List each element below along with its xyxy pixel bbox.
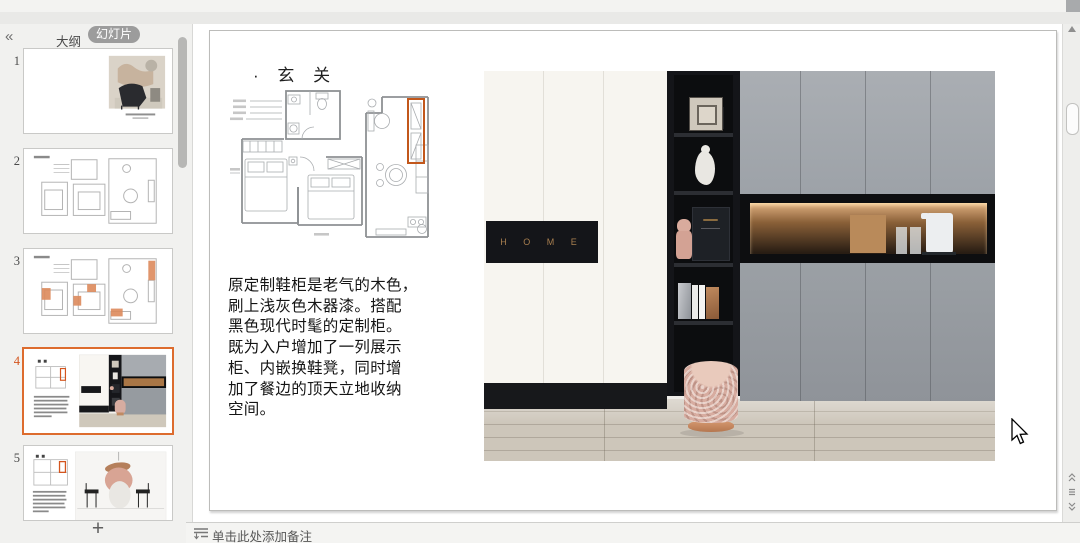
home-sign-niche: H O M E bbox=[486, 221, 598, 263]
floorplan-image[interactable] bbox=[230, 87, 434, 247]
slide-thumbnail-1[interactable] bbox=[23, 48, 173, 134]
slide-2-preview-graphic bbox=[24, 149, 172, 233]
slide-number-4: 4 bbox=[6, 354, 20, 369]
thumbnail-panel-scrollbar[interactable] bbox=[178, 37, 187, 168]
shelf bbox=[674, 263, 733, 267]
gray-lower-cabinet bbox=[740, 263, 995, 401]
floorplan-graphic bbox=[230, 87, 434, 247]
main-vertical-scrollbar bbox=[1062, 24, 1080, 522]
mouse-cursor-icon bbox=[1010, 418, 1030, 448]
shelf bbox=[674, 133, 733, 137]
pink-sculpture-base bbox=[676, 231, 692, 259]
toe-kick bbox=[484, 383, 667, 409]
slide-3-preview-graphic bbox=[24, 249, 172, 333]
add-slide-button[interactable]: + bbox=[80, 518, 116, 542]
white-cabinet: H O M E bbox=[484, 71, 667, 409]
white-pitcher bbox=[926, 213, 953, 254]
cabinet-seam bbox=[603, 71, 604, 383]
browse-slides-icon[interactable] bbox=[1067, 487, 1077, 497]
collapse-panel-icon[interactable]: « bbox=[5, 28, 13, 45]
cabinet-seam bbox=[930, 263, 931, 401]
shelf bbox=[674, 191, 733, 195]
window-corner-tab bbox=[1066, 0, 1080, 12]
wooden-box bbox=[850, 215, 886, 253]
slide-body-textbox[interactable]: 原定制鞋柜是老气的木色， 刷上浅灰色木器漆。搭配 黑色现代时髦的定制柜。 既为入… bbox=[228, 276, 470, 421]
notes-icon bbox=[193, 527, 209, 540]
ribbon-bottom-strip bbox=[0, 0, 1080, 12]
previous-slide-icon[interactable] bbox=[1067, 472, 1077, 482]
slide-thumbnail-3[interactable] bbox=[23, 248, 173, 334]
slide-5-preview-graphic bbox=[24, 446, 172, 521]
notes-placeholder: 单击此处添加备注 bbox=[212, 526, 312, 543]
pink-pouf bbox=[684, 361, 738, 423]
slide-thumbnail-5[interactable] bbox=[23, 445, 173, 521]
next-slide-icon[interactable] bbox=[1067, 502, 1077, 512]
floor-joint bbox=[814, 399, 815, 461]
picture-frame bbox=[689, 97, 723, 131]
slide-thumbnail-4-selected[interactable] bbox=[22, 347, 174, 435]
gold-accent bbox=[703, 219, 718, 221]
book bbox=[692, 285, 698, 319]
niche-glow bbox=[750, 203, 987, 254]
silver-bookend bbox=[678, 283, 691, 319]
box-line bbox=[701, 228, 720, 229]
slide-number-5: 5 bbox=[6, 451, 20, 466]
slide-number-1: 1 bbox=[6, 54, 20, 69]
black-display-box bbox=[692, 207, 730, 261]
book bbox=[699, 285, 705, 319]
slide-editing-canvas: · 玄 关 bbox=[193, 24, 1062, 522]
cabinet-seam bbox=[930, 71, 931, 194]
slide-1-preview-graphic bbox=[24, 49, 172, 133]
cabinet-seam bbox=[800, 71, 801, 194]
cabinet-photo[interactable]: H O M E bbox=[484, 71, 995, 461]
gray-upper-cabinet bbox=[740, 71, 995, 194]
slide-thumbnail-2[interactable] bbox=[23, 148, 173, 234]
presentation-app-window: « 大纲 幻灯片 1 2 bbox=[0, 0, 1080, 543]
slide-panel: « 大纲 幻灯片 1 2 bbox=[0, 24, 192, 543]
glass-cup bbox=[910, 227, 921, 254]
slide-4-preview-graphic bbox=[24, 349, 172, 433]
slide-number-3: 3 bbox=[6, 254, 20, 269]
white-figurine bbox=[695, 151, 715, 185]
tab-slides[interactable]: 幻灯片 bbox=[88, 26, 140, 43]
scrollbar-thumb[interactable] bbox=[1066, 103, 1079, 135]
frame-inner bbox=[697, 105, 717, 125]
scroll-up-icon[interactable] bbox=[1068, 26, 1076, 32]
slide-number-2: 2 bbox=[6, 154, 20, 169]
glass-cup bbox=[896, 227, 907, 254]
slide-page: · 玄 关 bbox=[209, 30, 1057, 511]
cabinet-seam bbox=[865, 71, 866, 194]
slide-title-textbox[interactable]: · 玄 关 bbox=[253, 61, 337, 86]
cabinet-seam bbox=[865, 263, 866, 401]
copper-bookend bbox=[706, 287, 719, 319]
tray bbox=[922, 252, 956, 255]
notes-bar[interactable]: 单击此处添加备注 bbox=[186, 522, 1080, 543]
black-display-column bbox=[667, 71, 740, 396]
shelf bbox=[674, 321, 733, 325]
lit-display-niche bbox=[740, 194, 995, 263]
cabinet-seam bbox=[800, 263, 801, 401]
